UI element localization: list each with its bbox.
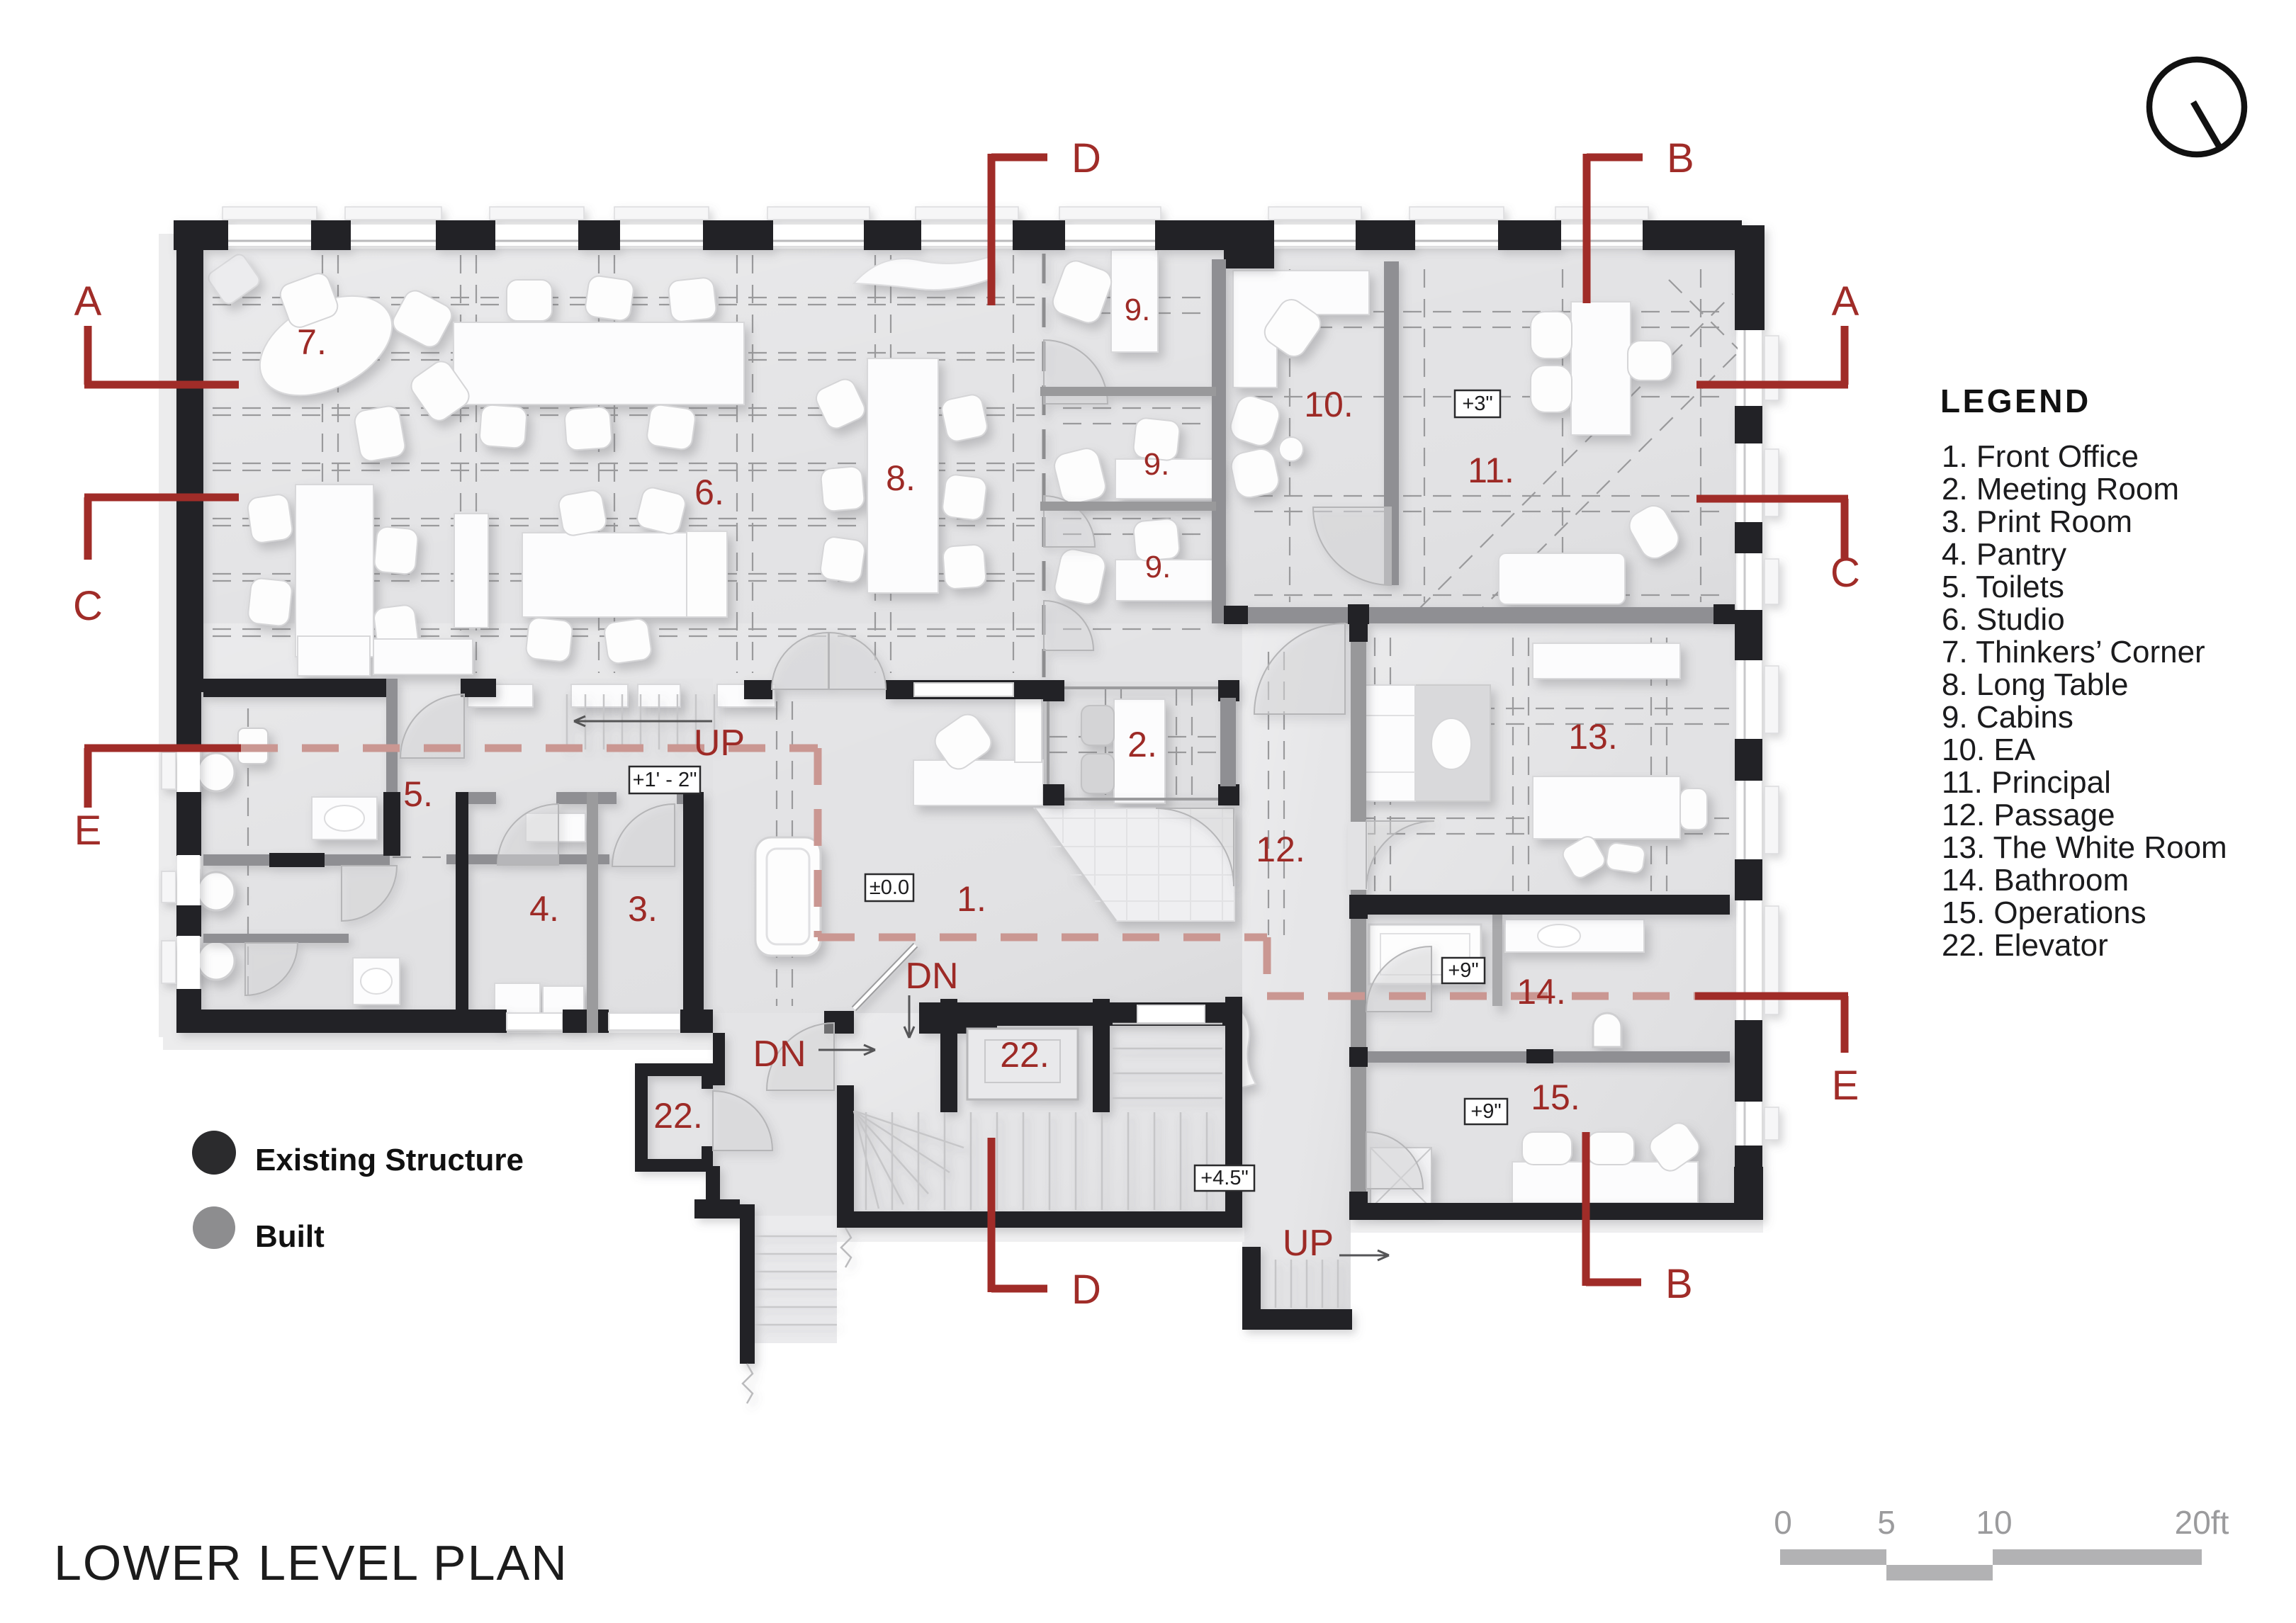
svg-text:B: B [1665, 1261, 1693, 1307]
svg-text:10.: 10. [1304, 385, 1354, 424]
svg-text:22.: 22. [653, 1096, 703, 1136]
svg-text:10: 10 [1976, 1504, 2012, 1541]
svg-text:15. Operations: 15. Operations [1942, 895, 2146, 930]
svg-text:C: C [1830, 550, 1860, 596]
svg-text:C: C [73, 583, 103, 629]
svg-text:UP: UP [1283, 1223, 1334, 1264]
svg-text:7.: 7. [297, 322, 327, 362]
svg-text:1.: 1. [957, 879, 986, 919]
svg-text:14.: 14. [1516, 972, 1566, 1012]
svg-text:+3": +3" [1462, 392, 1492, 415]
svg-text:9.: 9. [1125, 293, 1151, 327]
svg-text:5: 5 [1877, 1504, 1896, 1541]
svg-text:DN: DN [905, 956, 958, 997]
svg-text:3.: 3. [628, 889, 658, 929]
svg-text:E: E [1832, 1063, 1859, 1109]
svg-text:A: A [1832, 278, 1859, 324]
svg-text:8.: 8. [886, 458, 916, 498]
svg-text:LEGEND: LEGEND [1940, 383, 2091, 419]
svg-text:3. Print Room: 3. Print Room [1942, 504, 2132, 539]
svg-text:5. Toilets: 5. Toilets [1942, 570, 2064, 604]
svg-text:11.: 11. [1468, 451, 1514, 490]
svg-text:6. Studio: 6. Studio [1942, 602, 2065, 637]
svg-text:14. Bathroom: 14. Bathroom [1942, 863, 2129, 898]
svg-text:22.: 22. [1000, 1035, 1049, 1075]
svg-text:LOWER LEVEL PLAN: LOWER LEVEL PLAN [54, 1535, 568, 1590]
svg-text:2.: 2. [1127, 725, 1157, 764]
svg-text:5.: 5. [403, 774, 433, 814]
svg-text:15.: 15. [1531, 1078, 1580, 1117]
svg-text:22. Elevator: 22. Elevator [1942, 928, 2108, 963]
svg-text:4. Pantry: 4. Pantry [1942, 537, 2066, 572]
svg-text:B: B [1667, 135, 1694, 181]
svg-text:13. The White Room: 13. The White Room [1942, 830, 2227, 865]
svg-text:+9": +9" [1470, 1100, 1501, 1123]
svg-text:A: A [74, 278, 102, 324]
svg-text:DN: DN [753, 1034, 806, 1075]
svg-text:12. Passage: 12. Passage [1942, 798, 2115, 832]
svg-text:4.: 4. [529, 889, 559, 929]
svg-text:0: 0 [1774, 1504, 1792, 1541]
svg-text:D: D [1071, 135, 1101, 181]
svg-text:Built: Built [255, 1219, 325, 1254]
svg-text:9.: 9. [1145, 550, 1171, 584]
svg-text:6.: 6. [694, 473, 724, 512]
svg-text:D: D [1071, 1267, 1101, 1313]
svg-text:8. Long Table: 8. Long Table [1942, 667, 2128, 702]
svg-text:Existing Structure: Existing Structure [255, 1143, 524, 1177]
svg-text:9.: 9. [1144, 447, 1170, 482]
svg-text:11. Principal: 11. Principal [1942, 765, 2111, 800]
svg-text:1. Front Office: 1. Front Office [1942, 439, 2139, 474]
svg-text:E: E [74, 808, 102, 854]
svg-text:+4.5": +4.5" [1200, 1167, 1249, 1189]
svg-text:7. Thinkers’ Corner: 7. Thinkers’ Corner [1942, 635, 2205, 669]
svg-text:UP: UP [694, 723, 745, 764]
svg-text:+9": +9" [1448, 959, 1478, 982]
svg-text:20ft: 20ft [2175, 1504, 2229, 1541]
svg-text:±0.0: ±0.0 [870, 876, 909, 899]
svg-text:9. Cabins: 9. Cabins [1942, 700, 2073, 735]
svg-text:2. Meeting Room: 2. Meeting Room [1942, 472, 2179, 507]
svg-text:10. EA: 10. EA [1942, 733, 2036, 767]
svg-text:13.: 13. [1568, 717, 1618, 757]
svg-text:12.: 12. [1256, 830, 1305, 869]
svg-text:+1' - 2": +1' - 2" [633, 769, 697, 791]
